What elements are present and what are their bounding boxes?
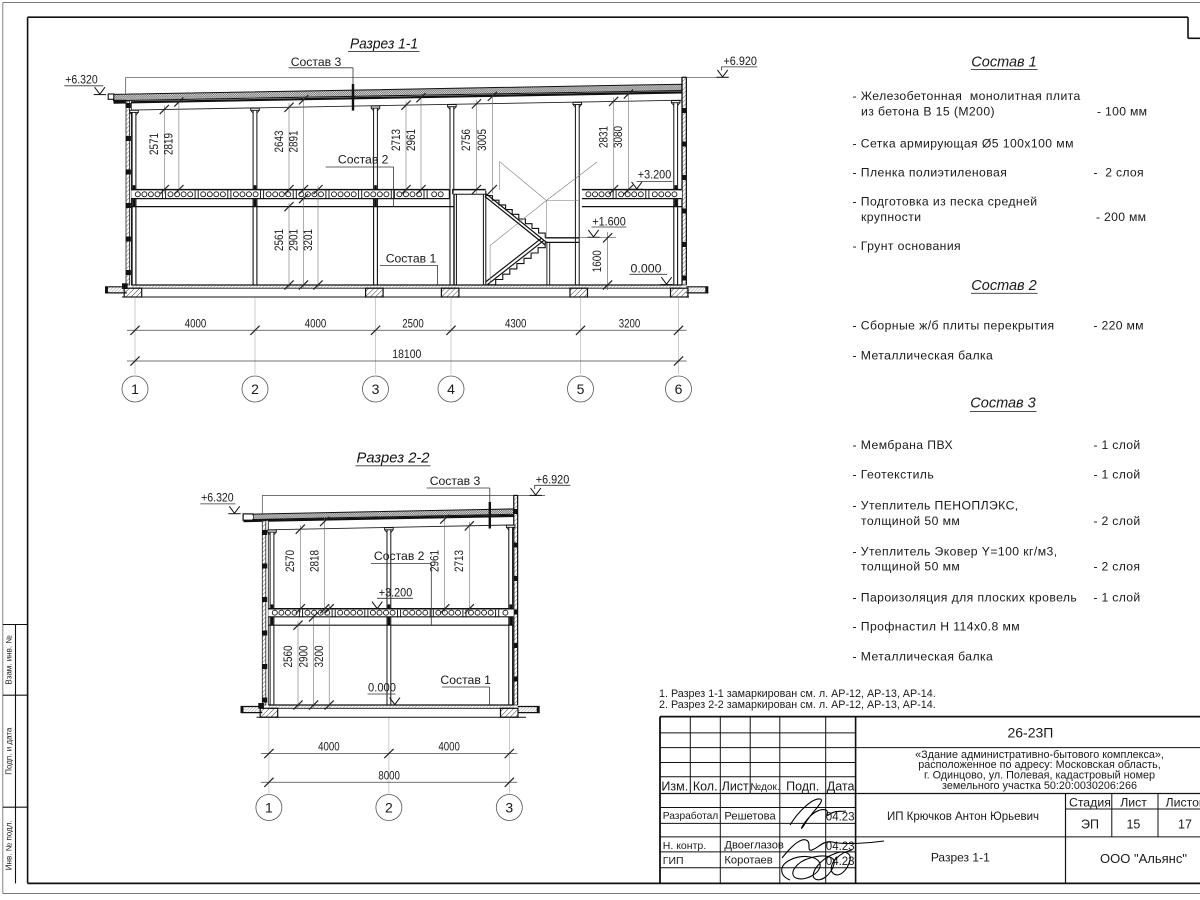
svg-text:- Утеплитель Эковер Y=100 кг/м: - Утеплитель Эковер Y=100 кг/м3, [853,545,1058,559]
svg-text:2643: 2643 [272,130,286,152]
svg-text:Решетова: Решетова [724,810,776,822]
svg-text:2891: 2891 [286,131,300,153]
svg-text:- 220 мм: - 220 мм [1094,319,1144,333]
svg-text:Разрез 2-2: Разрез 2-2 [357,451,431,467]
svg-text:- Металлическая балка: - Металлическая балка [853,349,994,363]
svg-text:толщиной 50 мм: толщиной 50 мм [861,514,960,528]
svg-text:Инв. № подл.: Инв. № подл. [5,820,14,870]
svg-text:- Профнастил Н 114х0.8 мм: - Профнастил Н 114х0.8 мм [853,620,1021,634]
svg-text:Подп.: Подп. [786,779,819,793]
svg-text:Состав 1: Состав 1 [971,55,1036,71]
svg-text:2900: 2900 [296,645,310,667]
svg-text:- Пленка полиэтиленовая: - Пленка полиэтиленовая [853,166,1008,180]
svg-text:- 100 мм: - 100 мм [1097,105,1147,119]
svg-text:1600: 1600 [590,250,604,272]
svg-text:2961: 2961 [428,550,442,572]
svg-text:17: 17 [1178,818,1192,832]
svg-text:2500: 2500 [402,316,424,330]
svg-text:Взам. инв. №: Взам. инв. № [5,635,14,685]
svg-text:№док.: №док. [750,782,779,793]
svg-text:- Геотекстиль: - Геотекстиль [853,468,935,482]
svg-text:- Железобетонная монолитная п: - Железобетонная монолитная плита [853,89,1081,103]
svg-text:2: 2 [385,799,393,815]
svg-text:2818: 2818 [307,550,321,572]
svg-text:2831: 2831 [596,126,610,148]
svg-text:ИП Крючков Антон Юрьевич: ИП Крючков Антон Юрьевич [887,811,1039,823]
svg-text:4: 4 [447,381,455,397]
svg-text:Лист: Лист [722,779,749,793]
svg-text:Кол.: Кол. [693,779,718,793]
svg-text:из бетона В 15 (М200): из бетона В 15 (М200) [861,105,995,119]
svg-text:3200: 3200 [619,316,641,330]
svg-text:3080: 3080 [611,126,625,148]
svg-text:5: 5 [577,381,585,397]
svg-text:1: 1 [131,381,139,397]
svg-text:4000: 4000 [318,740,340,754]
svg-text:- 2 слоя: - 2 слоя [1094,560,1141,574]
svg-text:+6.320: +6.320 [65,72,98,86]
svg-text:- 200 мм: - 200 мм [1096,210,1146,224]
svg-text:Лист: Лист [1120,796,1147,810]
svg-text:Состав 3: Состав 3 [970,396,1035,412]
svg-text:- 1 слой: - 1 слой [1094,591,1141,605]
svg-text:2570: 2570 [283,550,297,572]
svg-text:2713: 2713 [389,129,403,151]
svg-text:26-23П: 26-23П [1007,724,1053,740]
svg-text:- Металлическая балка: - Металлическая балка [853,650,994,664]
svg-text:- Мембрана ПВХ: - Мембрана ПВХ [853,438,954,452]
svg-text:2819: 2819 [162,133,176,155]
svg-text:Стадия: Стадия [1069,796,1111,810]
svg-text:Изм.: Изм. [661,779,688,793]
svg-text:Подп. и дата: Подп. и дата [5,727,14,775]
svg-text:+6.920: +6.920 [723,54,757,68]
svg-text:2901: 2901 [286,229,300,251]
svg-text:Листов: Листов [1166,796,1200,810]
svg-text:ООО "Альянс": ООО "Альянс" [1100,851,1187,866]
svg-text:ЭП: ЭП [1081,818,1099,832]
svg-text:2561: 2561 [272,229,286,251]
svg-text:ГИП: ГИП [663,855,684,867]
svg-text:- Грунт основания: - Грунт основания [853,239,962,253]
svg-text:- Пароизоляция для плоских кро: - Пароизоляция для плоских кровель [853,591,1078,605]
svg-text:Состав 1: Состав 1 [386,252,437,266]
svg-text:Двоеглазов: Двоеглазов [724,840,784,852]
svg-text:+3.200: +3.200 [638,167,672,181]
svg-text:- 2 слой: - 2 слой [1094,514,1141,528]
svg-text:- Сборные ж/б плиты перекрытия: - Сборные ж/б плиты перекрытия [853,319,1055,333]
svg-text:2756: 2756 [459,129,473,151]
svg-text:2571: 2571 [147,133,161,155]
svg-text:2. Разрез 2-2 замаркирован см.: 2. Разрез 2-2 замаркирован см. л. АР-12,… [659,699,936,711]
svg-text:Разработал: Разработал [663,810,719,822]
svg-text:Дата: Дата [827,779,855,793]
svg-text:- 2 слоя: - 2 слоя [1094,166,1144,180]
svg-text:+1.600: +1.600 [592,214,626,228]
svg-text:4000: 4000 [305,316,327,330]
svg-text:+3.200: +3.200 [379,585,413,599]
svg-text:2560: 2560 [281,645,295,667]
svg-text:8000: 8000 [378,768,400,782]
svg-text:2961: 2961 [404,129,418,151]
svg-text:Состав 3: Состав 3 [291,55,342,69]
svg-text:- Сетка армирующая Ø5 100х100: - Сетка армирующая Ø5 100х100 мм [853,137,1074,151]
svg-text:Н. контр.: Н. контр. [663,840,706,852]
svg-text:крупности: крупности [861,210,921,224]
svg-text:15: 15 [1126,818,1140,832]
svg-text:Коротаев: Коротаев [724,855,772,867]
svg-text:3: 3 [372,381,380,397]
svg-text:Состав 2: Состав 2 [338,153,389,167]
svg-text:Состав 2: Состав 2 [374,549,425,563]
svg-text:- 1 слой: - 1 слой [1094,468,1141,482]
svg-text:земельного участка 50:20:00302: земельного участка 50:20:0030206:266 [942,780,1137,792]
svg-text:+6.320: +6.320 [201,490,234,504]
svg-text:- 1 слой: - 1 слой [1094,438,1141,452]
svg-text:2: 2 [251,381,259,397]
svg-text:3: 3 [505,799,513,815]
svg-text:Разрез 1-1: Разрез 1-1 [350,37,418,53]
svg-text:3201: 3201 [301,229,315,251]
svg-text:3200: 3200 [312,645,326,667]
svg-text:0.000: 0.000 [631,262,662,276]
svg-text:4000: 4000 [438,740,460,754]
svg-text:Состав 3: Состав 3 [430,474,481,488]
svg-text:толщиной 50 мм: толщиной 50 мм [861,560,960,574]
svg-text:Состав 1: Состав 1 [440,673,491,687]
svg-text:- Подготовка из песка средней: - Подготовка из песка средней [853,195,1038,209]
svg-text:1: 1 [265,799,273,815]
svg-text:6: 6 [675,381,683,397]
svg-text:Разрез 1-1: Разрез 1-1 [931,851,990,865]
svg-text:2713: 2713 [452,550,466,572]
svg-text:4000: 4000 [185,316,207,330]
svg-text:+6.920: +6.920 [536,472,570,486]
svg-text:18100: 18100 [392,347,421,361]
svg-text:Состав 2: Состав 2 [971,278,1036,294]
svg-text:0.000: 0.000 [368,680,396,694]
svg-text:- Утеплитель ПЕНОПЛЭКС,: - Утеплитель ПЕНОПЛЭКС, [853,499,1019,513]
svg-text:4300: 4300 [505,316,527,330]
svg-text:3005: 3005 [475,129,489,151]
